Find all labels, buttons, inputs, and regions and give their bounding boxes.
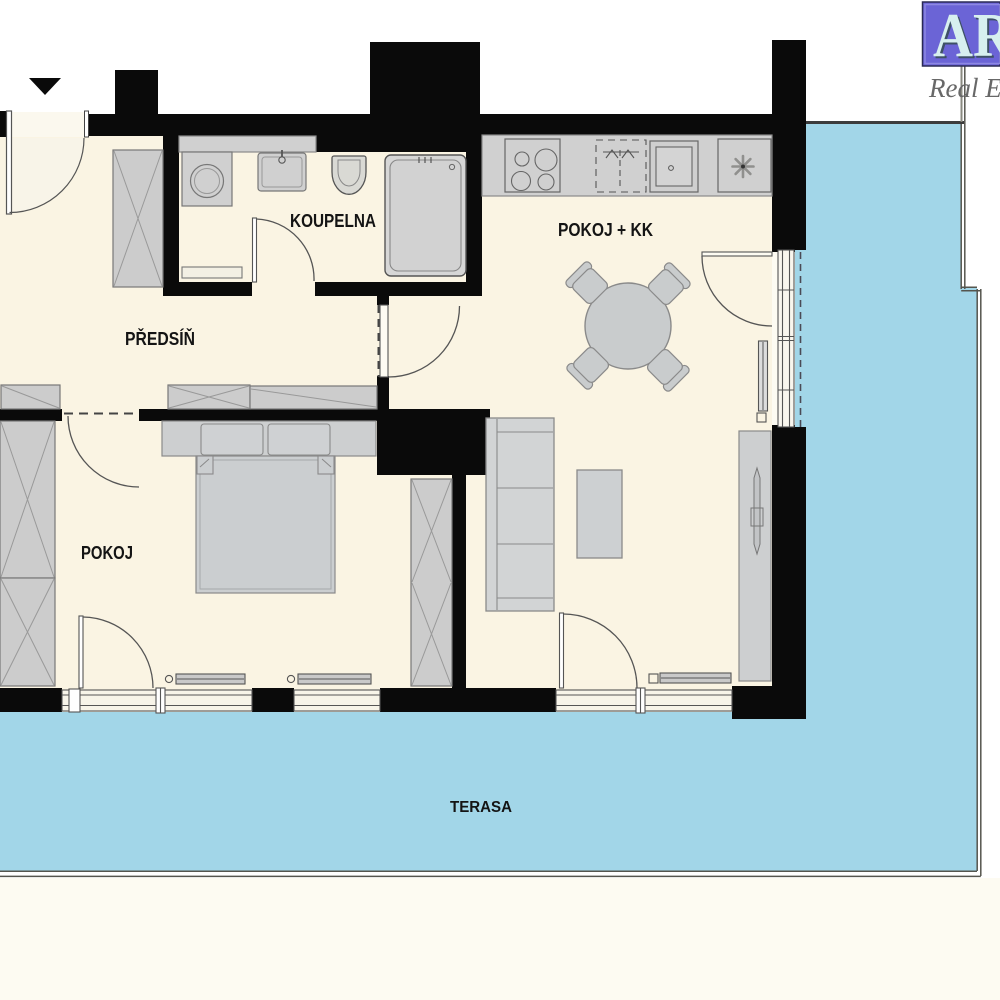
svg-text:Real E: Real E bbox=[928, 73, 1000, 103]
svg-text:AR: AR bbox=[933, 2, 1000, 70]
svg-text:PŘEDSÍŇ: PŘEDSÍŇ bbox=[125, 328, 195, 349]
svg-text:POKOJ: POKOJ bbox=[81, 542, 133, 563]
svg-text:TERASA: TERASA bbox=[450, 799, 512, 816]
svg-text:KOUPELNA: KOUPELNA bbox=[290, 210, 376, 231]
svg-text:POKOJ + KK: POKOJ + KK bbox=[558, 219, 654, 240]
